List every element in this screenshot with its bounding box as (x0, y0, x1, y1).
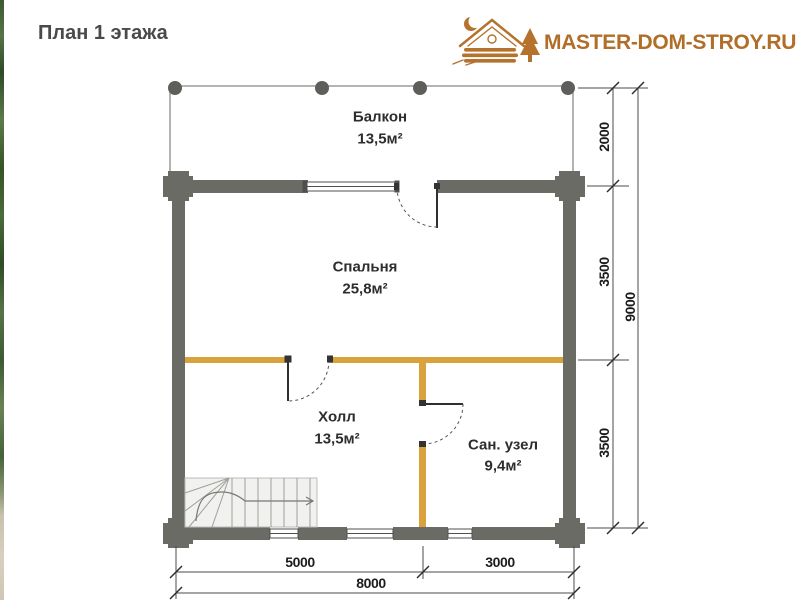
room-area-hall: 13,5м² (314, 431, 359, 448)
doors (285, 183, 464, 447)
dim-left-span: 5000 (285, 554, 315, 570)
bathroom-door (419, 400, 463, 447)
dim-right-span: 3000 (485, 554, 515, 570)
dim-total-depth: 9000 (622, 292, 638, 322)
room-label-balcony: Балкон (353, 109, 407, 126)
room-label-bedroom: Спальня (333, 259, 398, 276)
staircase (185, 478, 317, 527)
hall-door (285, 356, 334, 402)
balcony-door (394, 183, 440, 228)
dim-bedroom-depth: 3500 (596, 257, 612, 287)
dim-balcony-depth: 2000 (596, 122, 612, 152)
dim-hall-depth: 3500 (596, 428, 612, 458)
room-label-bathroom: Сан. узел (468, 437, 538, 454)
floor-plan-drawing (0, 0, 800, 600)
room-area-balcony: 13,5м² (357, 131, 402, 148)
balcony-posts (168, 81, 575, 95)
room-label-hall: Холл (318, 409, 356, 426)
dim-total-width: 8000 (356, 575, 386, 591)
room-area-bedroom: 25,8м² (342, 281, 387, 298)
floor-plan-page: План 1 этажа MASTE (0, 0, 800, 600)
room-area-bathroom: 9,4м² (485, 458, 522, 475)
